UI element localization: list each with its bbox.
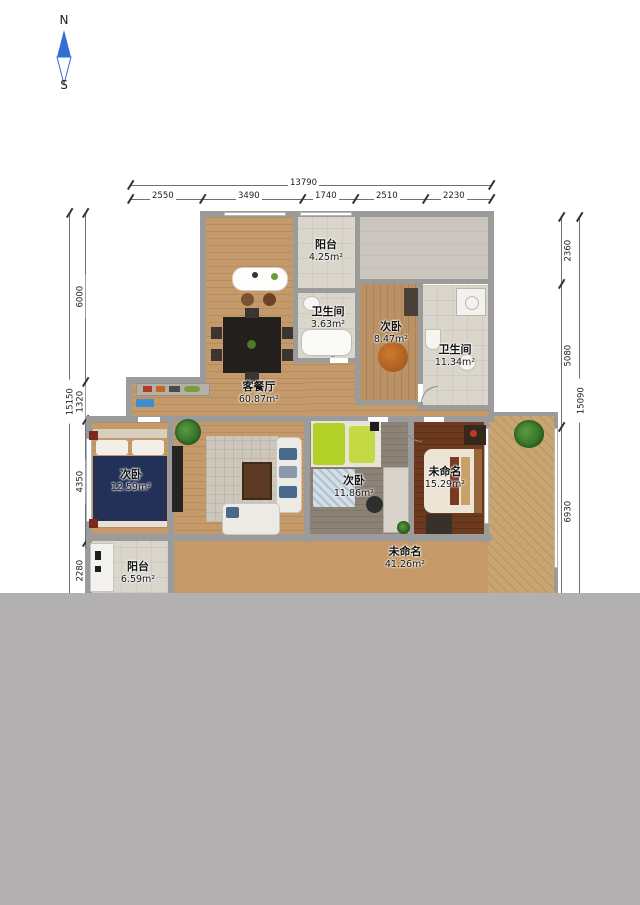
wall (488, 412, 558, 416)
wall (168, 537, 174, 593)
dim-right-seg-2: 5080 (564, 334, 573, 378)
bar-stool[interactable] (241, 293, 254, 306)
dim-left-seg-4: 2280 (76, 549, 85, 593)
sofa-cushion (279, 448, 297, 460)
bedroom-rug (313, 469, 355, 507)
dim-top-seg-2: 3490 (236, 192, 262, 201)
dim-left-seg-3: 4350 (76, 460, 85, 504)
cabinet-decor (169, 386, 180, 392)
bed-headboard (474, 449, 482, 513)
dining-chair[interactable] (282, 327, 293, 339)
wall (293, 288, 358, 293)
island-decor (252, 272, 258, 278)
dim-top-seg-1: 2550 (150, 192, 176, 201)
plant (175, 419, 201, 445)
toilet[interactable] (425, 329, 441, 350)
cabinet-decor (156, 386, 165, 392)
plant (514, 420, 544, 448)
tv-cabinet[interactable] (172, 446, 183, 512)
window (554, 428, 558, 568)
wall (200, 211, 206, 383)
dining-chair[interactable] (245, 308, 259, 318)
room-balcony-top[interactable] (297, 215, 355, 289)
dim-left-seg-1: 6000 (76, 275, 85, 319)
bed-pillow (96, 440, 128, 455)
dim-left-total: 15150 (66, 380, 75, 424)
window (224, 212, 286, 216)
nightstand-decor (470, 430, 477, 437)
bed-pillow (132, 440, 164, 455)
coffee-table[interactable] (242, 462, 272, 500)
wardrobe (404, 288, 418, 316)
dining-chair[interactable] (211, 349, 222, 361)
nightstand (89, 431, 98, 440)
washer-handle (95, 566, 101, 572)
desk-chair[interactable] (366, 496, 383, 513)
island-plant (271, 273, 278, 280)
entry-area-floor[interactable] (359, 215, 489, 280)
dim-top-seg-5: 2230 (441, 192, 467, 201)
shower-drain (465, 296, 479, 310)
entry-mat (136, 399, 154, 407)
dining-chair[interactable] (282, 349, 293, 361)
door-gap (138, 417, 160, 422)
bar-stool[interactable] (263, 293, 276, 306)
wall (304, 416, 310, 542)
wall (488, 211, 494, 418)
wall (355, 211, 360, 405)
dim-right-seg-3: 6930 (564, 490, 573, 534)
sofa-cushion (279, 466, 297, 478)
sofa-cushion (279, 486, 297, 498)
washer-handle (95, 551, 101, 560)
bed-bolster (450, 457, 459, 505)
washing-machine[interactable] (90, 543, 114, 592)
sofa-cushion (226, 507, 239, 518)
door-gap (424, 417, 444, 422)
bathtub[interactable] (301, 329, 352, 356)
window (86, 438, 92, 522)
kitchen-island[interactable] (232, 267, 288, 291)
dim-left-seg-2: 1320 (76, 380, 85, 424)
dim-tick (488, 180, 495, 190)
bed-bolster (461, 457, 470, 505)
window (300, 212, 352, 216)
plant (397, 521, 410, 534)
compass-south-label: S (56, 78, 72, 92)
floor-plan-canvas: N S 13790 2550 3490 1740 2510 2230 15150… (0, 0, 640, 905)
dim-tick (488, 194, 495, 204)
dim-top-total: 13790 (288, 179, 319, 188)
dim-line-right-segments (561, 217, 562, 593)
bed-blanket (313, 423, 345, 465)
wall (86, 534, 492, 541)
nightstand (89, 519, 98, 528)
dim-right-total: 15090 (577, 379, 586, 423)
dining-chair[interactable] (245, 372, 259, 382)
dim-line-top-segments (130, 199, 491, 200)
cabinet-decor (184, 386, 200, 392)
compass-north-label: N (56, 13, 72, 27)
dim-top-seg-4: 2510 (374, 192, 400, 201)
gray-cover-block (0, 593, 640, 905)
table-centerpiece (247, 340, 256, 349)
wall (293, 358, 358, 363)
dim-right-seg-1: 2360 (564, 229, 573, 273)
sink (458, 354, 476, 371)
door-gap (330, 358, 348, 363)
wall (355, 400, 423, 405)
room-open-space[interactable] (171, 541, 488, 593)
dining-chair[interactable] (211, 327, 222, 339)
wall (355, 279, 494, 284)
bed-left[interactable] (93, 456, 167, 524)
dresser[interactable] (426, 514, 452, 534)
dim-top-seg-3: 1740 (313, 192, 339, 201)
round-chair[interactable] (378, 342, 408, 372)
bed-decor (370, 422, 379, 431)
wall (293, 211, 298, 363)
bed-headboard (93, 429, 167, 438)
bed-runner (93, 521, 167, 527)
sink (303, 296, 320, 311)
cabinet-decor (143, 386, 152, 392)
bed-blanket (349, 426, 375, 463)
wall (418, 405, 494, 410)
